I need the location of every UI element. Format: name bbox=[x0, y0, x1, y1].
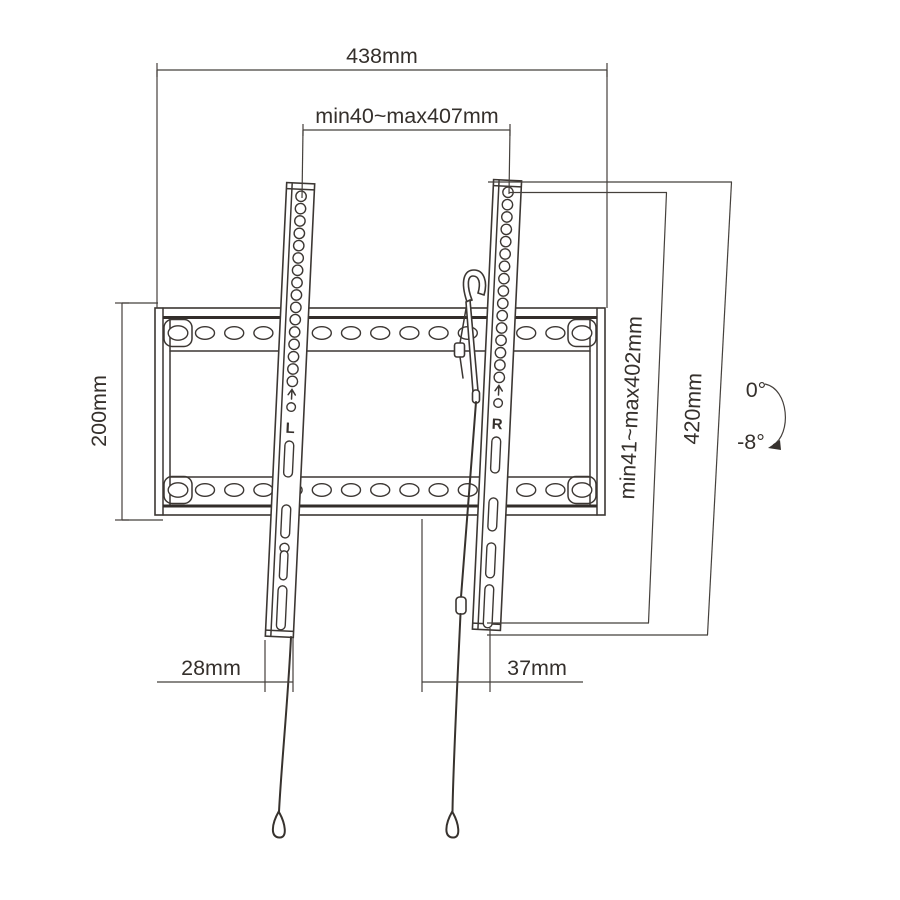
dim-plate-height: 200mm bbox=[87, 303, 163, 520]
dim-vesa-width-range: min40~max407mm bbox=[302, 104, 510, 198]
dim-total-width: 438mm bbox=[157, 44, 607, 308]
mount-dimension-diagram: L R bbox=[0, 0, 900, 900]
cord-loop-icon bbox=[273, 811, 285, 838]
tilt-arrowhead-icon bbox=[768, 440, 781, 450]
left-rail-label: L bbox=[285, 420, 295, 437]
dim-bracket-slot-label: min41~max402mm bbox=[615, 316, 647, 500]
cord-loop-icon bbox=[446, 811, 458, 838]
dim-bottom-right-label: 37mm bbox=[507, 656, 567, 680]
right-rail-label: R bbox=[491, 416, 503, 433]
diagram-line-art: L R bbox=[0, 0, 900, 900]
dim-plate-height-label: 200mm bbox=[87, 375, 111, 447]
dim-vesa-width-label: min40~max407mm bbox=[315, 104, 498, 128]
dim-total-width-label: 438mm bbox=[346, 44, 418, 68]
tilt-upper-label: 0° bbox=[746, 378, 767, 402]
dim-bottom-left-offset: 28mm bbox=[157, 638, 293, 692]
tilt-lower-label: -8° bbox=[737, 430, 765, 454]
tilt-arc-arrow-icon bbox=[765, 384, 785, 445]
tilt-angle-indicator: 0° -8° bbox=[737, 378, 785, 454]
wall-plate bbox=[155, 308, 605, 515]
dim-bottom-left-label: 28mm bbox=[181, 656, 241, 680]
dim-bracket-length-label: 420mm bbox=[680, 372, 707, 445]
left-pull-cord bbox=[273, 637, 291, 838]
